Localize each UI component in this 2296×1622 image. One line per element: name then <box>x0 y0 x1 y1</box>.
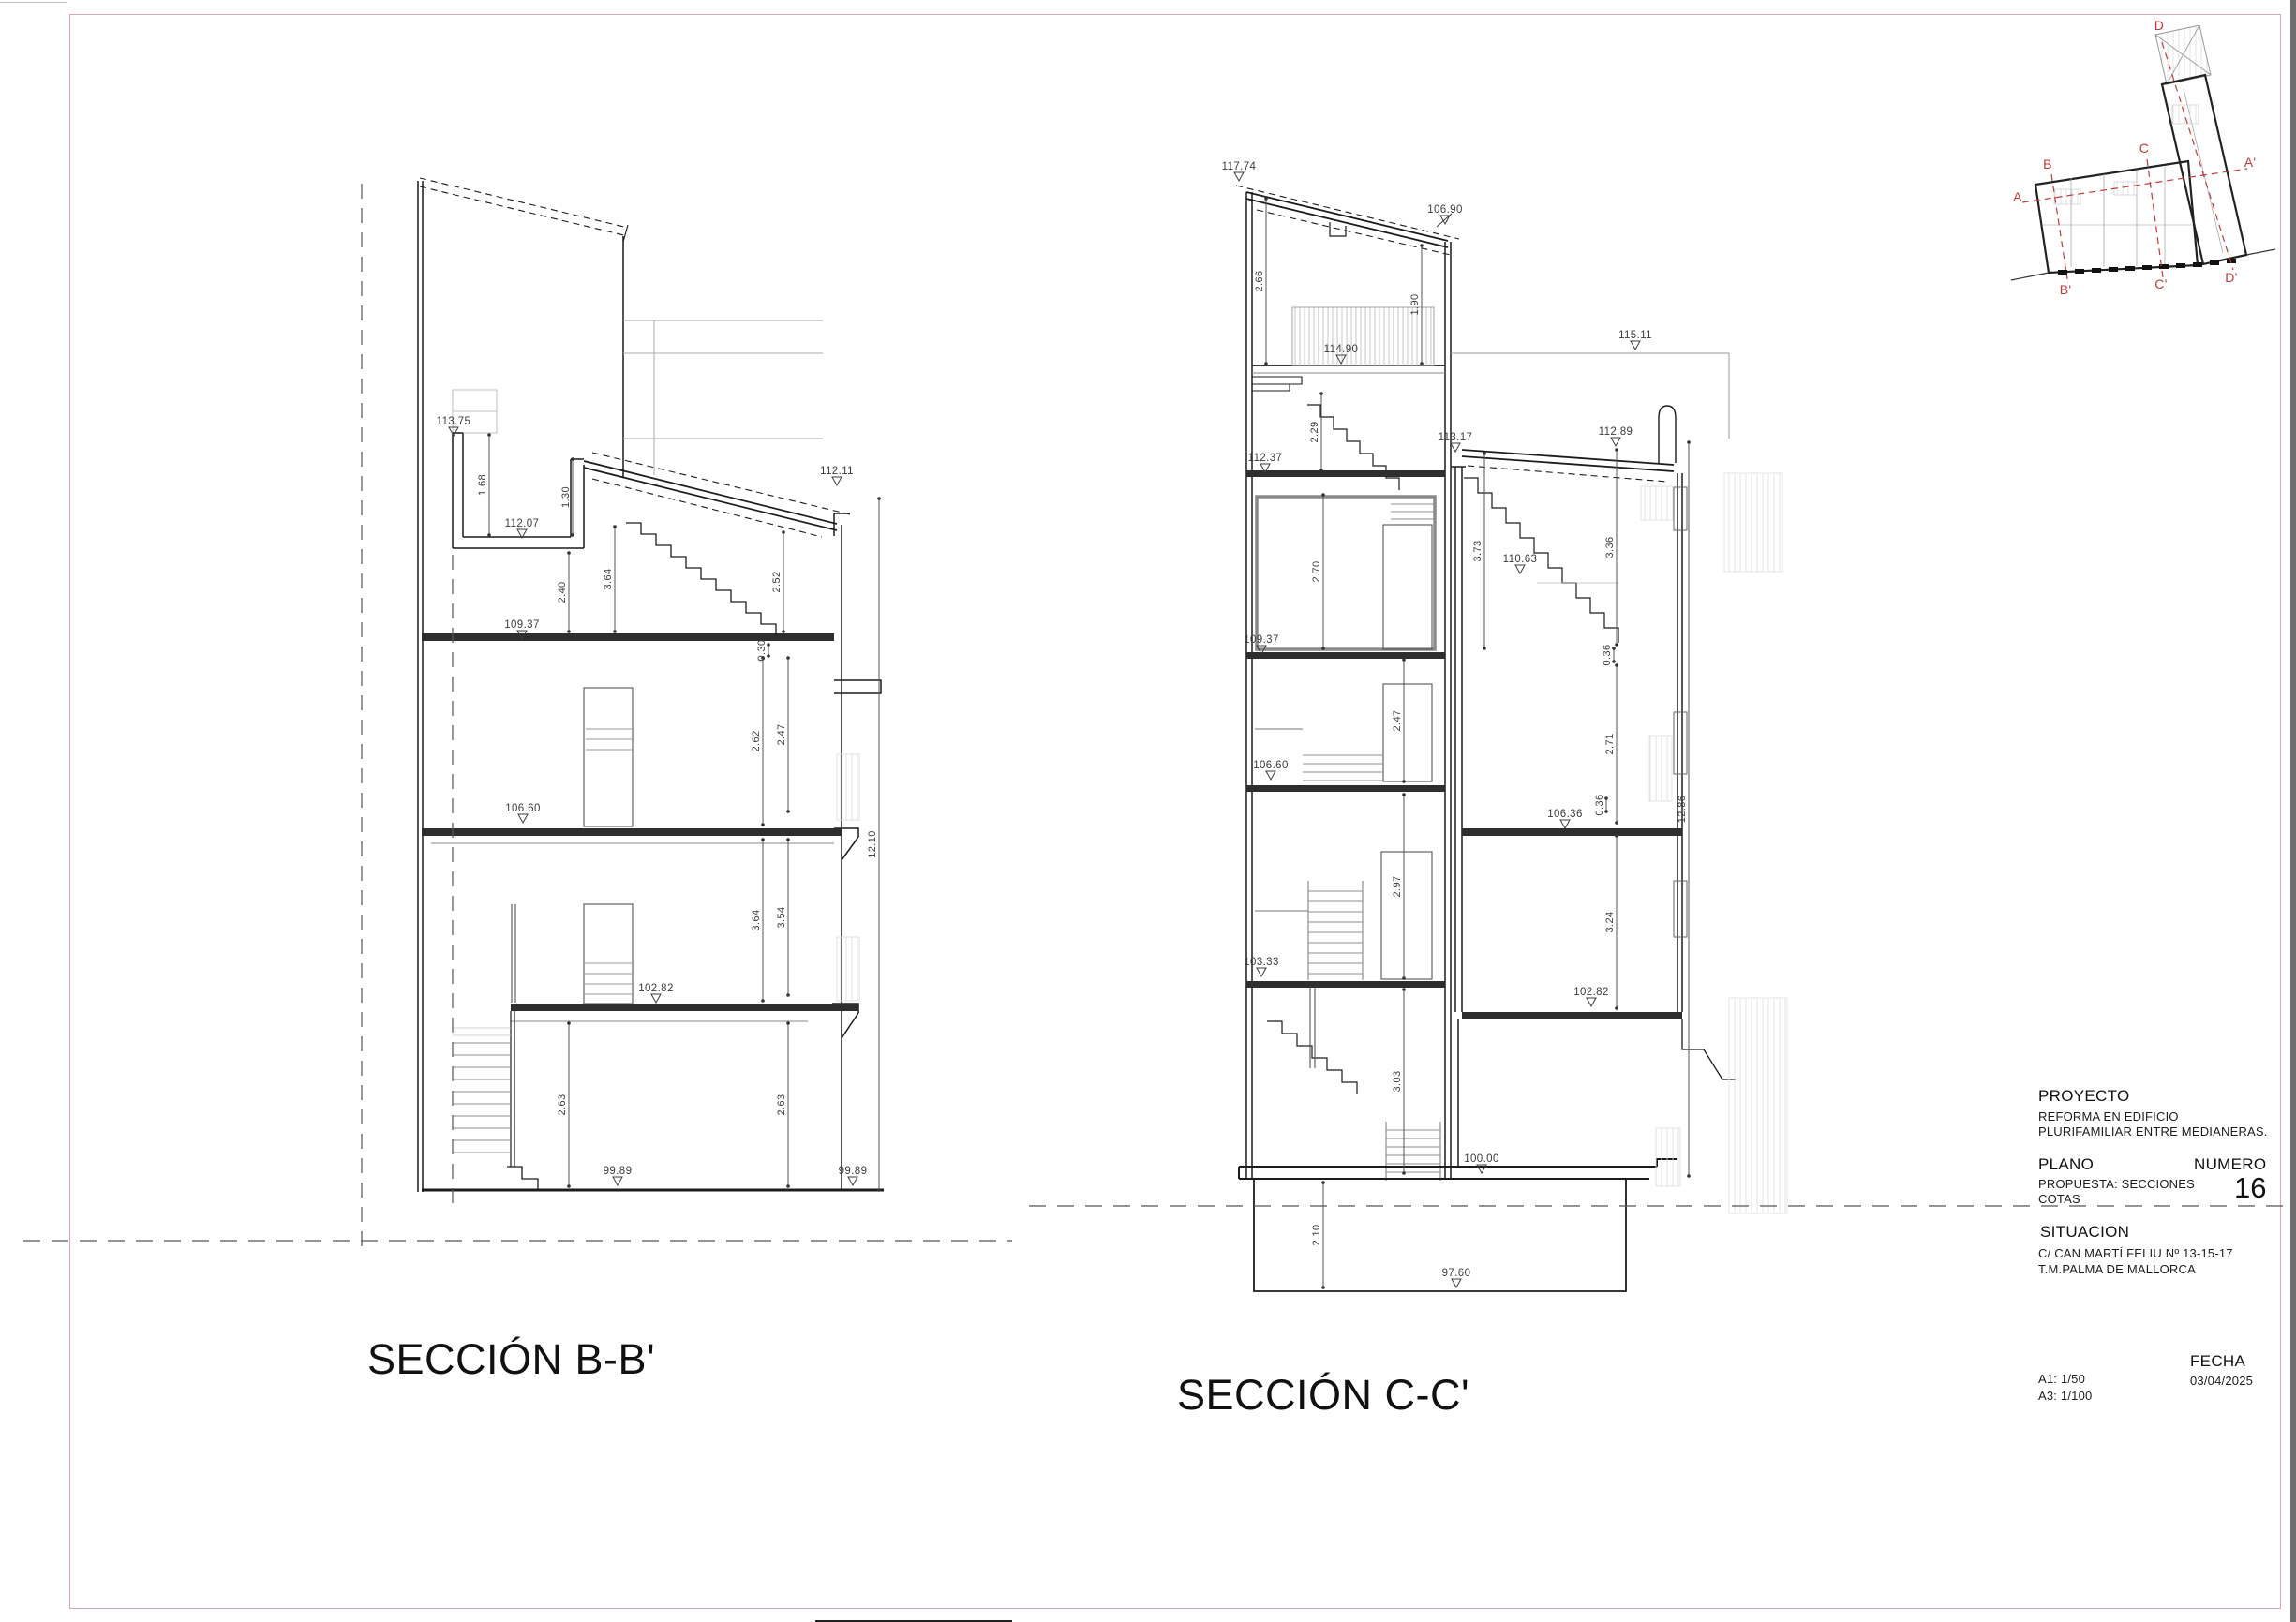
svg-text:114.90: 114.90 <box>1324 344 1359 355</box>
svg-text:106.90: 106.90 <box>1427 204 1463 216</box>
proyecto-line2: PLURIFAMILIAR ENTRE MEDIANERAS. <box>2038 1124 2268 1138</box>
section-cc-title: SECCIÓN C-C' <box>1177 1371 1469 1420</box>
key-plan-balcony-marks <box>2058 259 2236 275</box>
proyecto-label: PROYECTO <box>2038 1087 2130 1106</box>
scale-a3: A3: 1/100 <box>2038 1389 2092 1403</box>
scale-a1: A1: 1/50 <box>2038 1372 2085 1386</box>
svg-text:109.37: 109.37 <box>504 619 540 631</box>
svg-text:B: B <box>2043 156 2052 171</box>
plan-sheet: { "sheet": { "accent_red": "#c23b3b", "b… <box>0 0 2296 1622</box>
svg-text:1.30: 1.30 <box>560 486 572 508</box>
fecha-value: 03/04/2025 <box>2190 1374 2253 1388</box>
proyecto-line1: REFORMA EN EDIFICIO <box>2038 1109 2179 1123</box>
svg-text:A': A' <box>2244 155 2257 170</box>
svg-text:2.10: 2.10 <box>1311 1224 1322 1245</box>
svg-text:2.66: 2.66 <box>1254 270 1265 291</box>
svg-text:3.24: 3.24 <box>1604 911 1616 932</box>
plano-label: PLANO <box>2038 1155 2094 1174</box>
svg-text:112.89: 112.89 <box>1599 426 1633 438</box>
svg-text:3.73: 3.73 <box>1472 540 1483 561</box>
svg-text:D: D <box>2154 18 2164 33</box>
sections-drawing-canvas: 113.75112.07112.11109.37106.60102.8299.8… <box>0 0 2296 1622</box>
svg-text:3.54: 3.54 <box>776 906 787 928</box>
svg-text:2.63: 2.63 <box>776 1094 787 1115</box>
svg-text:2.40: 2.40 <box>557 581 568 603</box>
svg-text:D': D' <box>2225 270 2237 285</box>
plano-line2: COTAS <box>2038 1192 2080 1206</box>
svg-text:99.89: 99.89 <box>604 1166 633 1177</box>
svg-text:3.36: 3.36 <box>1604 536 1616 558</box>
svg-text:C: C <box>2139 141 2149 156</box>
cc-level-markers: 117.74106.90114.90115.11113.17112.89112.… <box>1222 161 1652 1287</box>
svg-text:A: A <box>2013 189 2022 204</box>
svg-text:99.89: 99.89 <box>839 1166 868 1177</box>
svg-text:2.47: 2.47 <box>776 723 787 745</box>
svg-text:100.00: 100.00 <box>1464 1153 1499 1165</box>
svg-text:112.11: 112.11 <box>820 466 854 477</box>
svg-text:3.64: 3.64 <box>751 909 762 930</box>
svg-text:112.07: 112.07 <box>505 518 540 529</box>
svg-text:3.64: 3.64 <box>603 568 614 589</box>
svg-text:102.82: 102.82 <box>638 983 674 994</box>
svg-text:106.60: 106.60 <box>1253 760 1289 771</box>
bb-level-markers: 113.75112.07112.11109.37106.60102.8299.8… <box>437 416 868 1185</box>
svg-text:2.29: 2.29 <box>1309 421 1320 442</box>
svg-text:103.33: 103.33 <box>1244 957 1279 968</box>
svg-text:112.37: 112.37 <box>1248 453 1283 464</box>
svg-text:C': C' <box>2154 276 2167 291</box>
numero-value: 16 <box>2234 1171 2266 1205</box>
svg-text:113.75: 113.75 <box>437 416 471 427</box>
svg-text:0.36: 0.36 <box>1594 794 1605 815</box>
section-bb-geometry <box>23 178 1012 1246</box>
fecha-label: FECHA <box>2190 1352 2245 1371</box>
svg-text:0.36: 0.36 <box>1602 644 1613 665</box>
svg-text:2.47: 2.47 <box>1392 709 1403 731</box>
svg-text:12.86: 12.86 <box>1677 796 1688 824</box>
svg-text:2.71: 2.71 <box>1604 733 1616 754</box>
svg-text:109.37: 109.37 <box>1244 634 1279 646</box>
svg-text:115.11: 115.11 <box>1618 330 1652 341</box>
svg-text:2.63: 2.63 <box>557 1094 568 1115</box>
svg-text:106.36: 106.36 <box>1547 809 1583 820</box>
svg-text:2.97: 2.97 <box>1392 875 1403 897</box>
svg-text:2.70: 2.70 <box>1311 560 1322 582</box>
svg-text:B': B' <box>2060 282 2072 297</box>
section-bb-title: SECCIÓN B-B' <box>367 1335 655 1384</box>
plano-line1: PROPUESTA: SECCIONES <box>2038 1177 2195 1191</box>
situacion-line2: T.M.PALMA DE MALLORCA <box>2038 1262 2196 1276</box>
svg-text:106.60: 106.60 <box>505 803 541 814</box>
svg-text:2.52: 2.52 <box>771 571 783 592</box>
svg-text:97.60: 97.60 <box>1442 1268 1471 1279</box>
svg-text:117.74: 117.74 <box>1222 161 1257 172</box>
svg-text:2.62: 2.62 <box>751 730 762 751</box>
key-plan-section-lines <box>2022 42 2247 279</box>
svg-text:102.82: 102.82 <box>1573 987 1609 998</box>
svg-text:12.10: 12.10 <box>867 830 878 858</box>
svg-text:110.63: 110.63 <box>1503 554 1538 565</box>
svg-text:1.68: 1.68 <box>477 474 488 496</box>
svg-text:1.90: 1.90 <box>1409 293 1421 315</box>
situacion-line1: C/ CAN MARTÍ FELIU Nº 13-15-17 <box>2038 1246 2233 1260</box>
svg-text:113.17: 113.17 <box>1439 432 1473 443</box>
key-plan-section-letters: DBCAA'B'C'D' <box>2013 18 2256 297</box>
svg-text:3.03: 3.03 <box>1392 1070 1403 1092</box>
situacion-label: SITUACION <box>2040 1223 2129 1242</box>
